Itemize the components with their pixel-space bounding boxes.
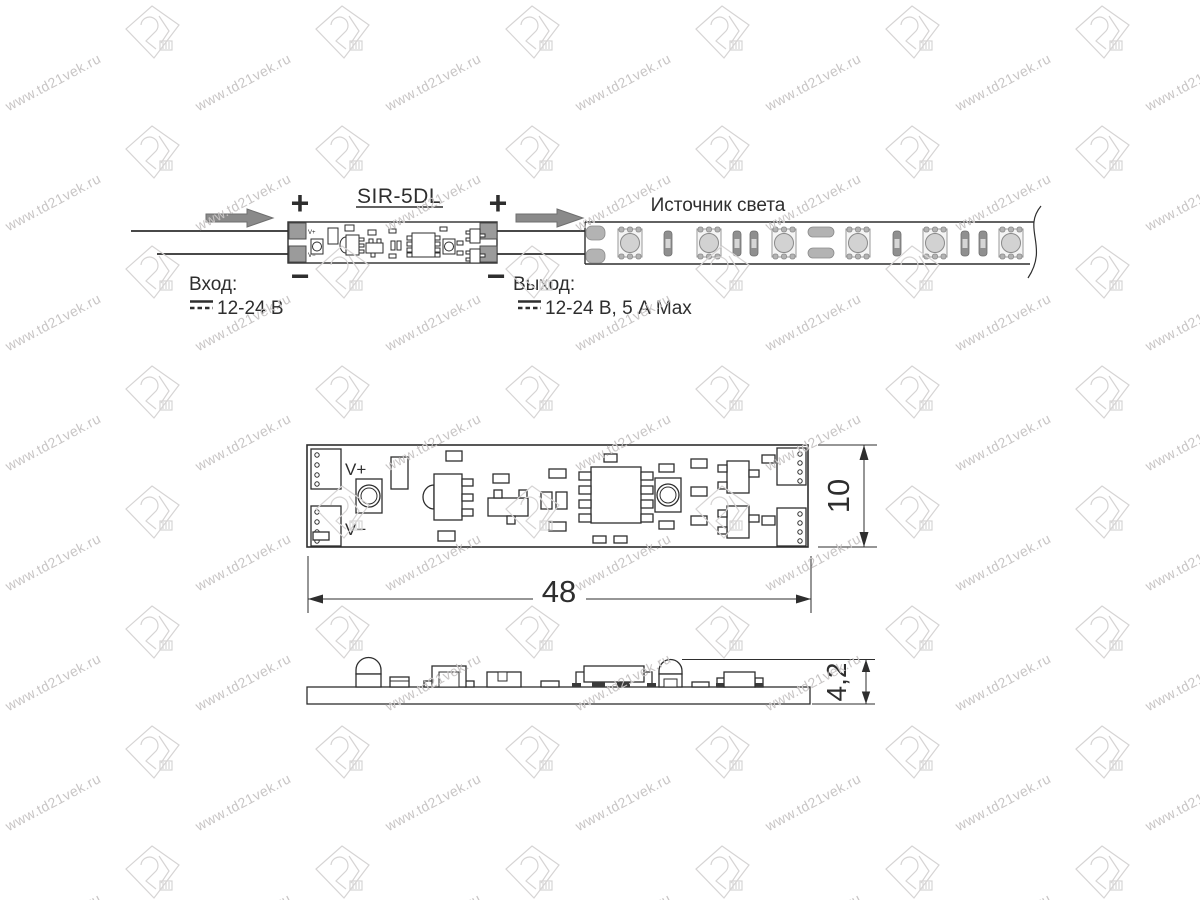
output-value: 12-24 В, 5 А Max <box>545 298 692 319</box>
minus-out: − <box>487 258 506 294</box>
topview-vplus-label: V+ <box>345 460 366 479</box>
wiring-diagram: V+ V− <box>131 185 1041 319</box>
output-label: Выход: <box>513 274 575 295</box>
page: V+ V− <box>0 0 1200 900</box>
input-value: 12-24 В <box>217 298 284 319</box>
strip-cut-pad-top <box>808 227 834 237</box>
sideview-components <box>356 658 763 688</box>
input-wires <box>131 231 290 254</box>
topview-vminus-label: V− <box>345 520 366 539</box>
diagram-svg: V+ V− <box>0 0 1200 900</box>
top-view: V+ V− <box>307 445 808 547</box>
dimension-length: 48 <box>308 556 811 613</box>
solder-pad-in-vplus <box>289 223 306 239</box>
board-vplus-label: V+ <box>308 230 316 236</box>
strip-wire-pad-top <box>586 226 605 240</box>
side-view <box>307 658 810 705</box>
minus-in: − <box>291 258 310 294</box>
led-strip <box>585 206 1041 278</box>
dimension-width: 10 <box>818 445 877 547</box>
connector-top-left <box>311 449 341 489</box>
light-source-title: Источник света <box>651 195 786 216</box>
connector-top-right <box>777 448 806 485</box>
output-flow-arrow-icon <box>516 209 583 227</box>
plus-in: + <box>291 185 310 221</box>
strip-wire-pad-bottom <box>586 249 605 263</box>
dc-symbol-icon <box>190 302 213 309</box>
dimension-width-value: 10 <box>821 479 856 513</box>
input-label-group: Вход: 12-24 В <box>189 274 284 319</box>
connector-bottom-right <box>777 508 806 546</box>
dc-symbol-icon <box>518 302 541 309</box>
dimension-height-value: 4,2 <box>821 663 852 702</box>
controller-board-small: V+ V− <box>288 222 497 263</box>
input-label: Вход: <box>189 274 237 295</box>
plus-out: + <box>489 185 508 221</box>
controller-title: SIR-5DL <box>357 185 441 208</box>
dimension-length-value: 48 <box>542 574 576 609</box>
input-flow-arrow-icon <box>206 209 273 227</box>
output-label-group: Выход: 12-24 В, 5 А Max <box>513 274 692 319</box>
strip-cut-pad-bottom <box>808 248 834 258</box>
output-wires <box>497 231 598 254</box>
